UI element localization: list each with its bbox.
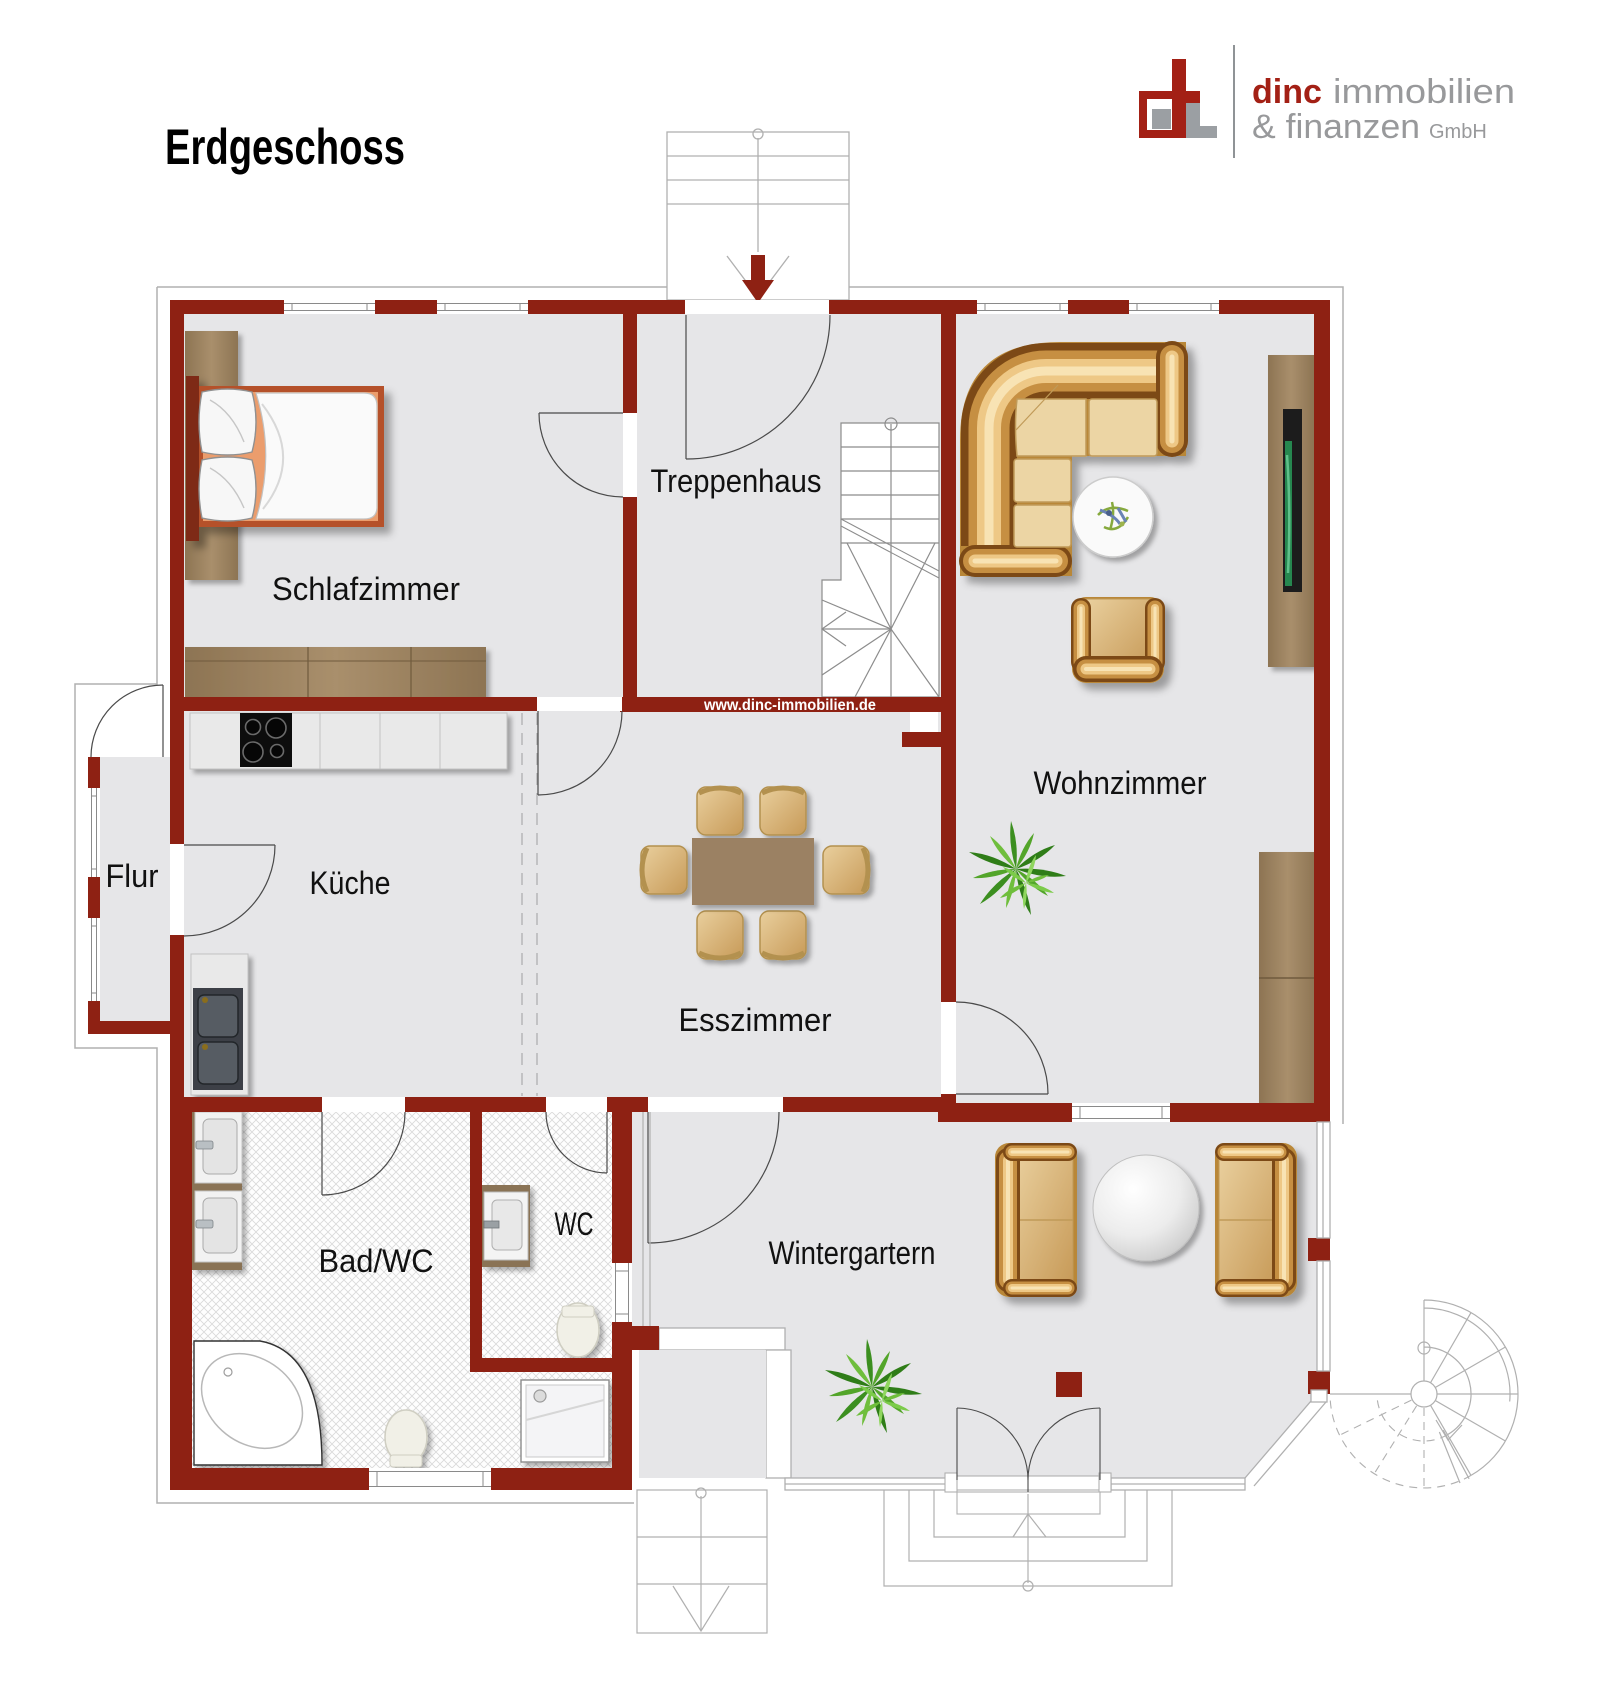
svg-text:& finanzen: & finanzen xyxy=(1252,108,1420,146)
svg-text:Esszimmer: Esszimmer xyxy=(679,1002,832,1038)
svg-text:Erdgeschoss: Erdgeschoss xyxy=(165,119,405,175)
svg-text:Bad/WC: Bad/WC xyxy=(319,1243,434,1279)
svg-text:Schlafzimmer: Schlafzimmer xyxy=(272,571,460,607)
svg-text:Wohnzimmer: Wohnzimmer xyxy=(1034,765,1207,801)
svg-text:Wintergartern: Wintergartern xyxy=(769,1235,936,1271)
svg-text:Küche: Küche xyxy=(310,865,391,901)
svg-text:immobilien: immobilien xyxy=(1333,73,1515,111)
svg-text:Treppenhaus: Treppenhaus xyxy=(651,463,822,499)
svg-text:WC: WC xyxy=(555,1206,594,1242)
svg-text:www.dinc-immobilien.de: www.dinc-immobilien.de xyxy=(703,697,876,714)
svg-text:Flur: Flur xyxy=(106,858,159,894)
svg-text:dinc: dinc xyxy=(1252,73,1322,111)
svg-text:GmbH: GmbH xyxy=(1429,121,1487,143)
